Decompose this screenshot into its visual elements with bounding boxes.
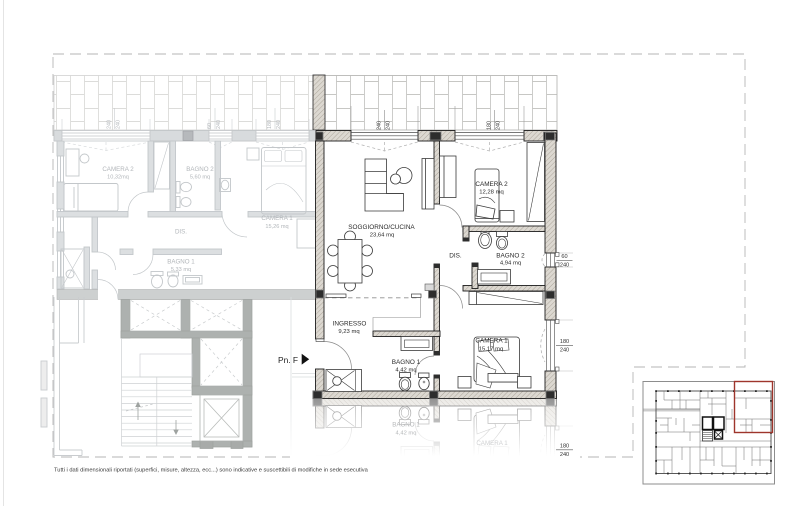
svg-text:4,42 mq: 4,42 mq: [395, 368, 416, 374]
svg-text:DIS.: DIS.: [449, 253, 462, 260]
svg-text:SOGGIORNO/CUCINA: SOGGIORNO/CUCINA: [348, 224, 415, 231]
svg-text:240: 240: [496, 121, 502, 130]
svg-text:240: 240: [377, 121, 383, 130]
svg-text:240: 240: [560, 263, 569, 269]
svg-text:240: 240: [560, 348, 569, 354]
svg-text:5,33 mq: 5,33 mq: [171, 267, 191, 273]
svg-text:CAMERA 1: CAMERA 1: [475, 338, 508, 345]
svg-text:180: 180: [560, 444, 569, 450]
svg-text:4,94 mq: 4,94 mq: [500, 261, 521, 267]
svg-text:180: 180: [487, 121, 493, 130]
svg-text:240: 240: [560, 452, 569, 458]
svg-text:240: 240: [386, 121, 392, 130]
svg-text:60: 60: [561, 254, 567, 260]
svg-text:15,26 mq: 15,26 mq: [265, 224, 288, 230]
svg-text:BAGNO 2: BAGNO 2: [186, 166, 214, 173]
svg-text:DIS.: DIS.: [175, 229, 187, 236]
svg-text:CAMERA 1: CAMERA 1: [476, 440, 508, 447]
svg-text:BAGNO 1: BAGNO 1: [167, 259, 195, 266]
svg-text:BAGNO 1: BAGNO 1: [392, 422, 420, 429]
svg-text:INGRESSO: INGRESSO: [333, 321, 367, 328]
svg-text:Pn. F: Pn. F: [278, 355, 298, 365]
svg-text:CAMERA 2: CAMERA 2: [102, 166, 134, 173]
svg-text:180: 180: [267, 120, 273, 129]
svg-text:4,42 mq: 4,42 mq: [396, 431, 417, 437]
svg-text:10,32mq: 10,32mq: [107, 175, 129, 181]
svg-text:5,60 mq: 5,60 mq: [190, 175, 210, 181]
svg-text:23,64 mq: 23,64 mq: [370, 233, 395, 239]
svg-text:240: 240: [276, 120, 282, 129]
svg-text:60: 60: [207, 123, 213, 129]
svg-text:12,28 mq: 12,28 mq: [479, 190, 504, 196]
svg-text:BAGNO 2: BAGNO 2: [496, 253, 525, 260]
svg-text:9,23 mq: 9,23 mq: [338, 329, 359, 335]
svg-text:240: 240: [107, 120, 113, 129]
svg-text:Tutti i dati dimensionali ripo: Tutti i dati dimensionali riportati (sup…: [54, 468, 369, 474]
svg-text:CAMERA 1: CAMERA 1: [261, 215, 293, 222]
svg-text:15,17 mq: 15,17 mq: [479, 347, 504, 353]
svg-text:180: 180: [560, 339, 569, 345]
svg-text:240: 240: [116, 120, 122, 129]
svg-text:CAMERA 2: CAMERA 2: [475, 181, 508, 188]
svg-text:240: 240: [216, 120, 222, 129]
svg-text:BAGNO 1: BAGNO 1: [392, 359, 421, 366]
